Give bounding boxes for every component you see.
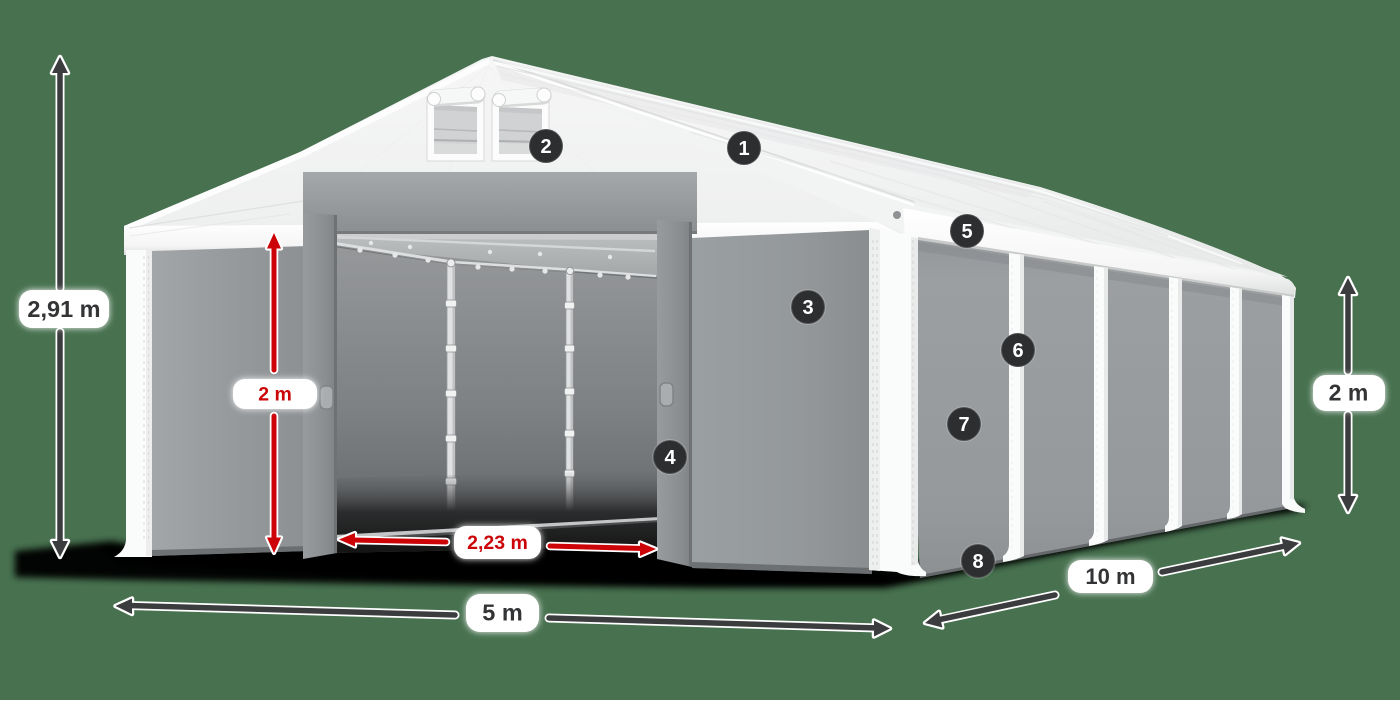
svg-text:3: 3 [802,297,813,319]
svg-text:4: 4 [664,447,676,469]
svg-text:2: 2 [540,136,551,158]
svg-text:10 m: 10 m [1085,564,1135,589]
svg-text:8: 8 [972,551,983,573]
svg-text:5 m: 5 m [482,600,523,626]
svg-text:2 m: 2 m [1329,380,1369,406]
svg-text:6: 6 [1012,340,1023,362]
svg-text:2,23 m: 2,23 m [467,532,528,554]
svg-text:7: 7 [958,414,969,436]
svg-text:5: 5 [961,221,972,243]
svg-text:1: 1 [738,138,749,160]
svg-text:2 m: 2 m [258,384,292,406]
svg-text:2,91 m: 2,91 m [27,296,100,322]
